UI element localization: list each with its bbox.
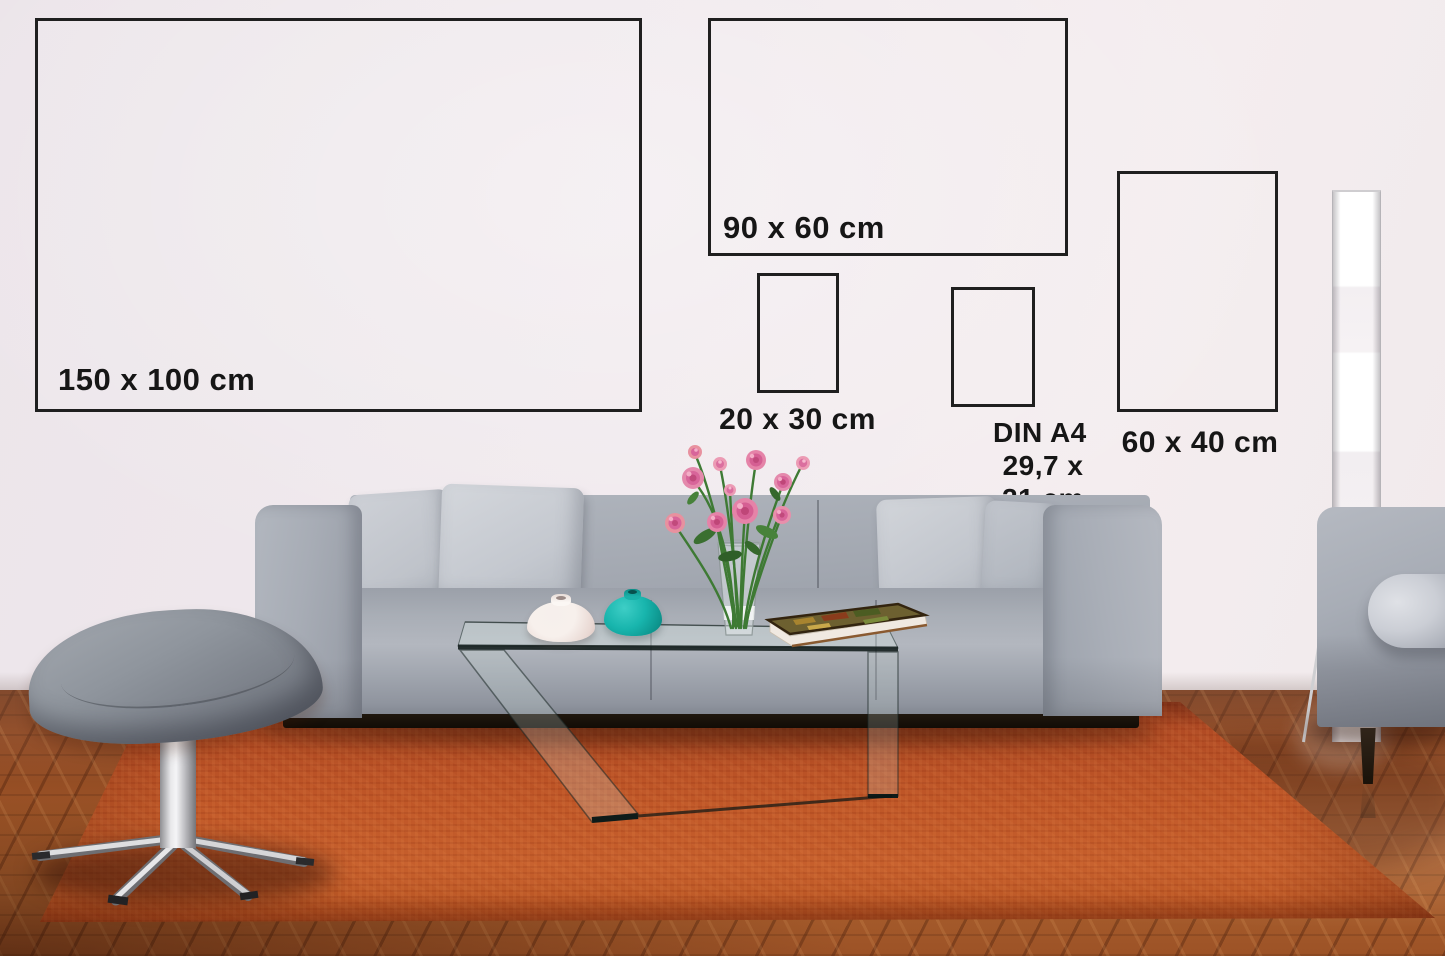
egg-stool	[20, 600, 350, 920]
flower-blooms	[665, 445, 810, 533]
sofa-arm-right	[1043, 505, 1162, 716]
table-slant-leg	[460, 650, 638, 822]
size-frame-150x100: 150 x 100 cm	[35, 18, 642, 412]
size-label-90x60: 90 x 60 cm	[723, 211, 885, 245]
flower-bouquet	[635, 428, 835, 643]
white-vase-neck	[551, 594, 571, 606]
white-vase-mouth	[556, 596, 566, 600]
table-right-panel	[868, 652, 898, 796]
size-frame-20x30	[757, 273, 839, 393]
size-frame-90x60: 90 x 60 cm	[708, 18, 1068, 256]
size-label-din-a4: DIN A4 29,7 x 21 cm	[893, 416, 1093, 449]
size-label-din-a4-line1: DIN A4	[993, 416, 1087, 449]
white-vase	[527, 602, 595, 642]
size-frame-din-a4	[951, 287, 1035, 407]
size-label-150x100: 150 x 100 cm	[58, 363, 255, 397]
stool-column	[160, 730, 196, 848]
living-room-scene: 150 x 100 cm 90 x 60 cm 20 x 30 cm DIN A…	[0, 0, 1445, 956]
right-sofa-bolster-pillow	[1368, 574, 1445, 648]
size-label-60x40: 60 x 40 cm	[1110, 426, 1290, 459]
size-frame-60x40	[1117, 171, 1278, 412]
table-bottom-edge	[638, 796, 892, 816]
